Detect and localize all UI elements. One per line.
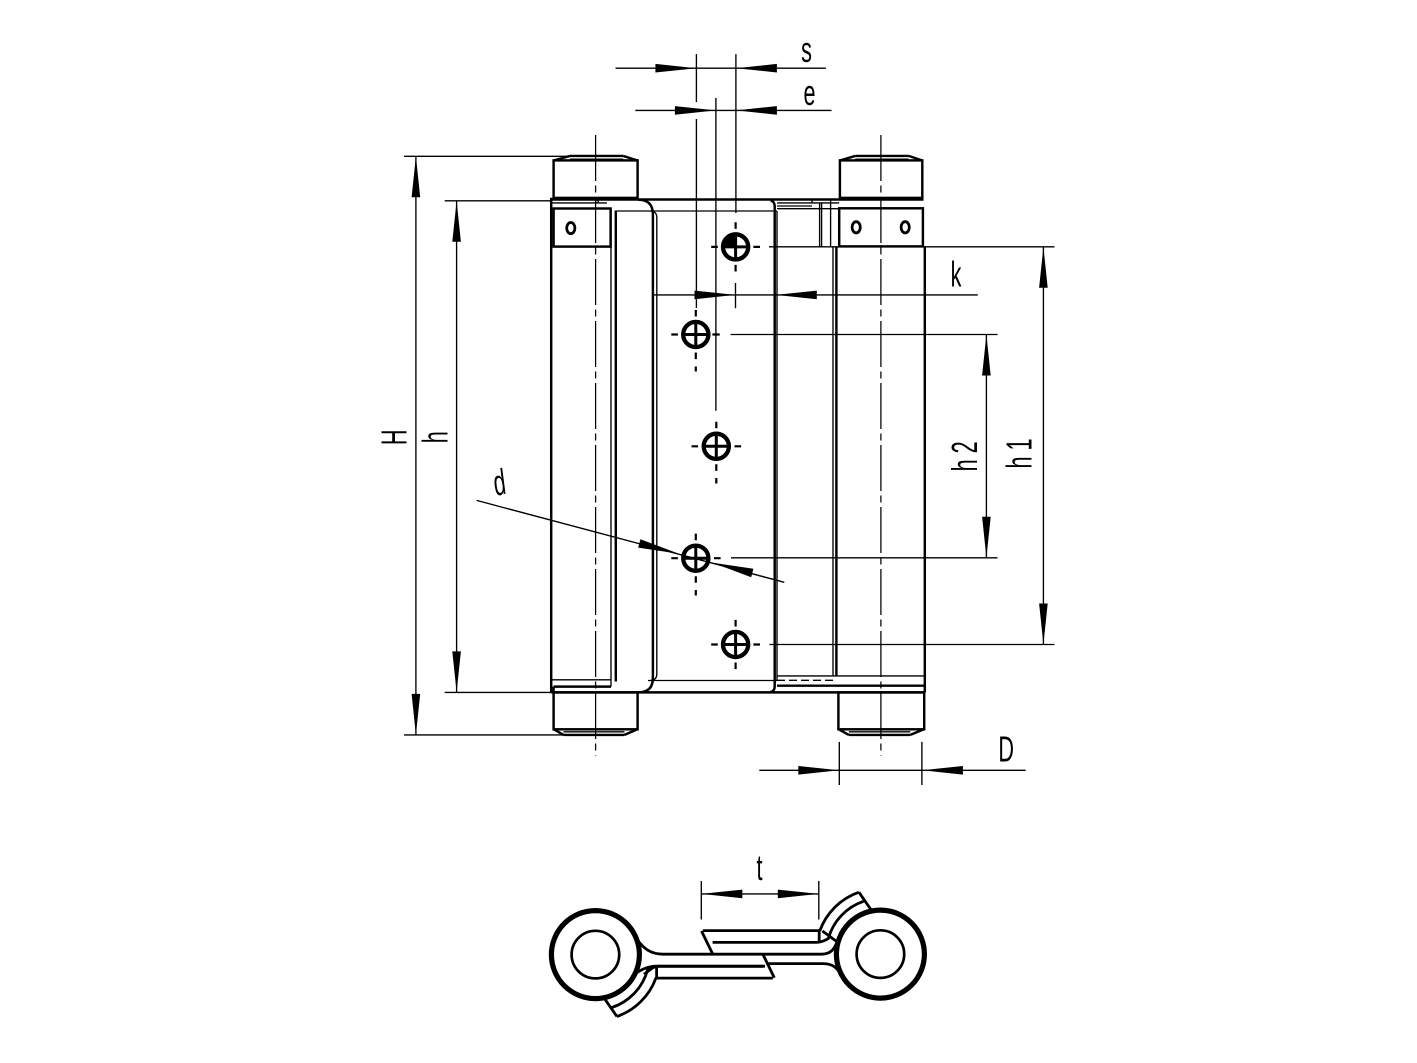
- svg-text:h2: h2: [945, 435, 985, 471]
- svg-text:s: s: [801, 30, 812, 70]
- svg-text:D: D: [998, 730, 1014, 770]
- svg-text:H: H: [375, 430, 415, 446]
- svg-text:t: t: [756, 848, 763, 888]
- svg-text:k: k: [951, 255, 962, 295]
- svg-text:h1: h1: [1000, 432, 1040, 468]
- svg-text:h: h: [416, 431, 456, 443]
- svg-text:e: e: [803, 73, 815, 113]
